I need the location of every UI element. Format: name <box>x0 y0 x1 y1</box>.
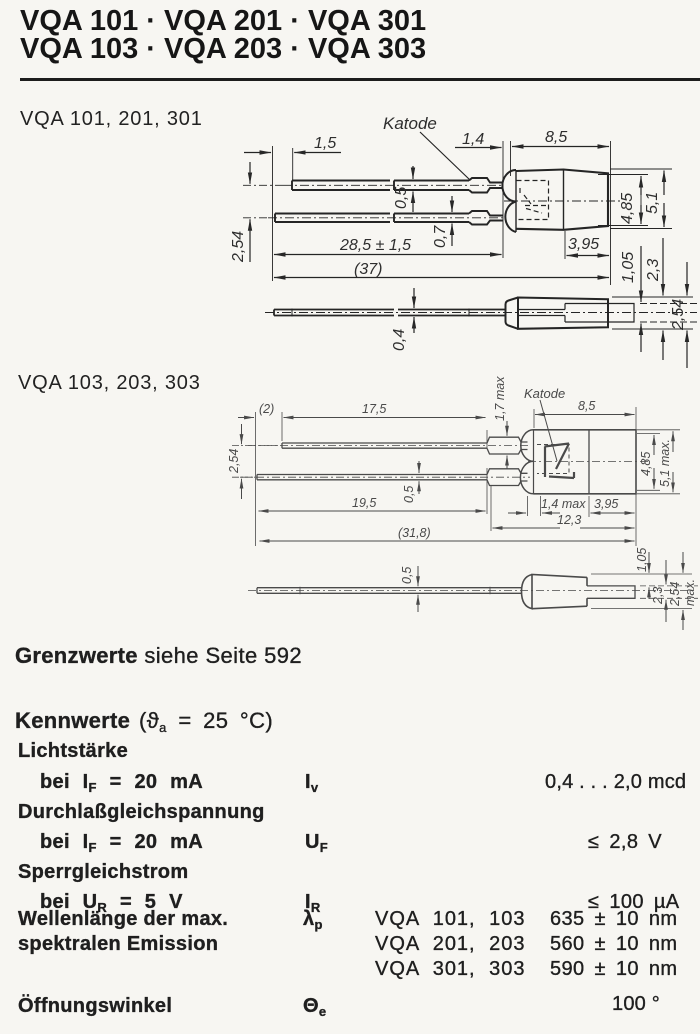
svg-text:(31,8): (31,8) <box>398 526 431 540</box>
svg-text:0,5: 0,5 <box>402 486 416 503</box>
svg-text:max.: max. <box>683 579 697 606</box>
svg-text:(2): (2) <box>259 402 274 416</box>
svg-text:1,05: 1,05 <box>635 548 649 572</box>
svg-text:1,7 max: 1,7 max <box>493 376 507 421</box>
svg-text:2,54: 2,54 <box>227 449 241 474</box>
svg-text:Katode: Katode <box>524 386 565 401</box>
svg-text:4,85: 4,85 <box>639 452 653 476</box>
svg-text:2,3: 2,3 <box>651 587 665 605</box>
svg-text:Katode: Katode <box>383 114 437 133</box>
svg-text:2,3: 2,3 <box>645 259 662 282</box>
svg-text:8,5: 8,5 <box>578 399 595 413</box>
svg-text:(37): (37) <box>354 261 382 278</box>
svg-text:2,54: 2,54 <box>670 299 687 331</box>
svg-text:2,54: 2,54 <box>230 231 247 263</box>
svg-text:0,7: 0,7 <box>432 225 449 248</box>
svg-text:0,4: 0,4 <box>391 329 408 351</box>
svg-text:3,95: 3,95 <box>568 236 599 253</box>
svg-text:1,05: 1,05 <box>620 252 637 283</box>
svg-text:19,5: 19,5 <box>352 496 376 510</box>
svg-text:0,5: 0,5 <box>400 567 414 584</box>
svg-text:1,4 max: 1,4 max <box>541 497 586 511</box>
svg-text:28,5 ± 1,5: 28,5 ± 1,5 <box>339 237 411 254</box>
svg-text:3,95: 3,95 <box>594 497 618 511</box>
svg-text:4,85: 4,85 <box>619 193 636 224</box>
svg-text:2,54: 2,54 <box>668 582 682 607</box>
svg-text:5,1 max.: 5,1 max. <box>658 439 672 487</box>
svg-text:5,1: 5,1 <box>644 192 661 214</box>
svg-text:1,5: 1,5 <box>314 135 336 152</box>
svg-text:0,5: 0,5 <box>393 187 410 209</box>
svg-text:17,5: 17,5 <box>362 402 386 416</box>
svg-text:1,4: 1,4 <box>462 131 484 148</box>
svg-text:12,3: 12,3 <box>557 513 581 527</box>
svg-text:8,5: 8,5 <box>545 129 567 146</box>
